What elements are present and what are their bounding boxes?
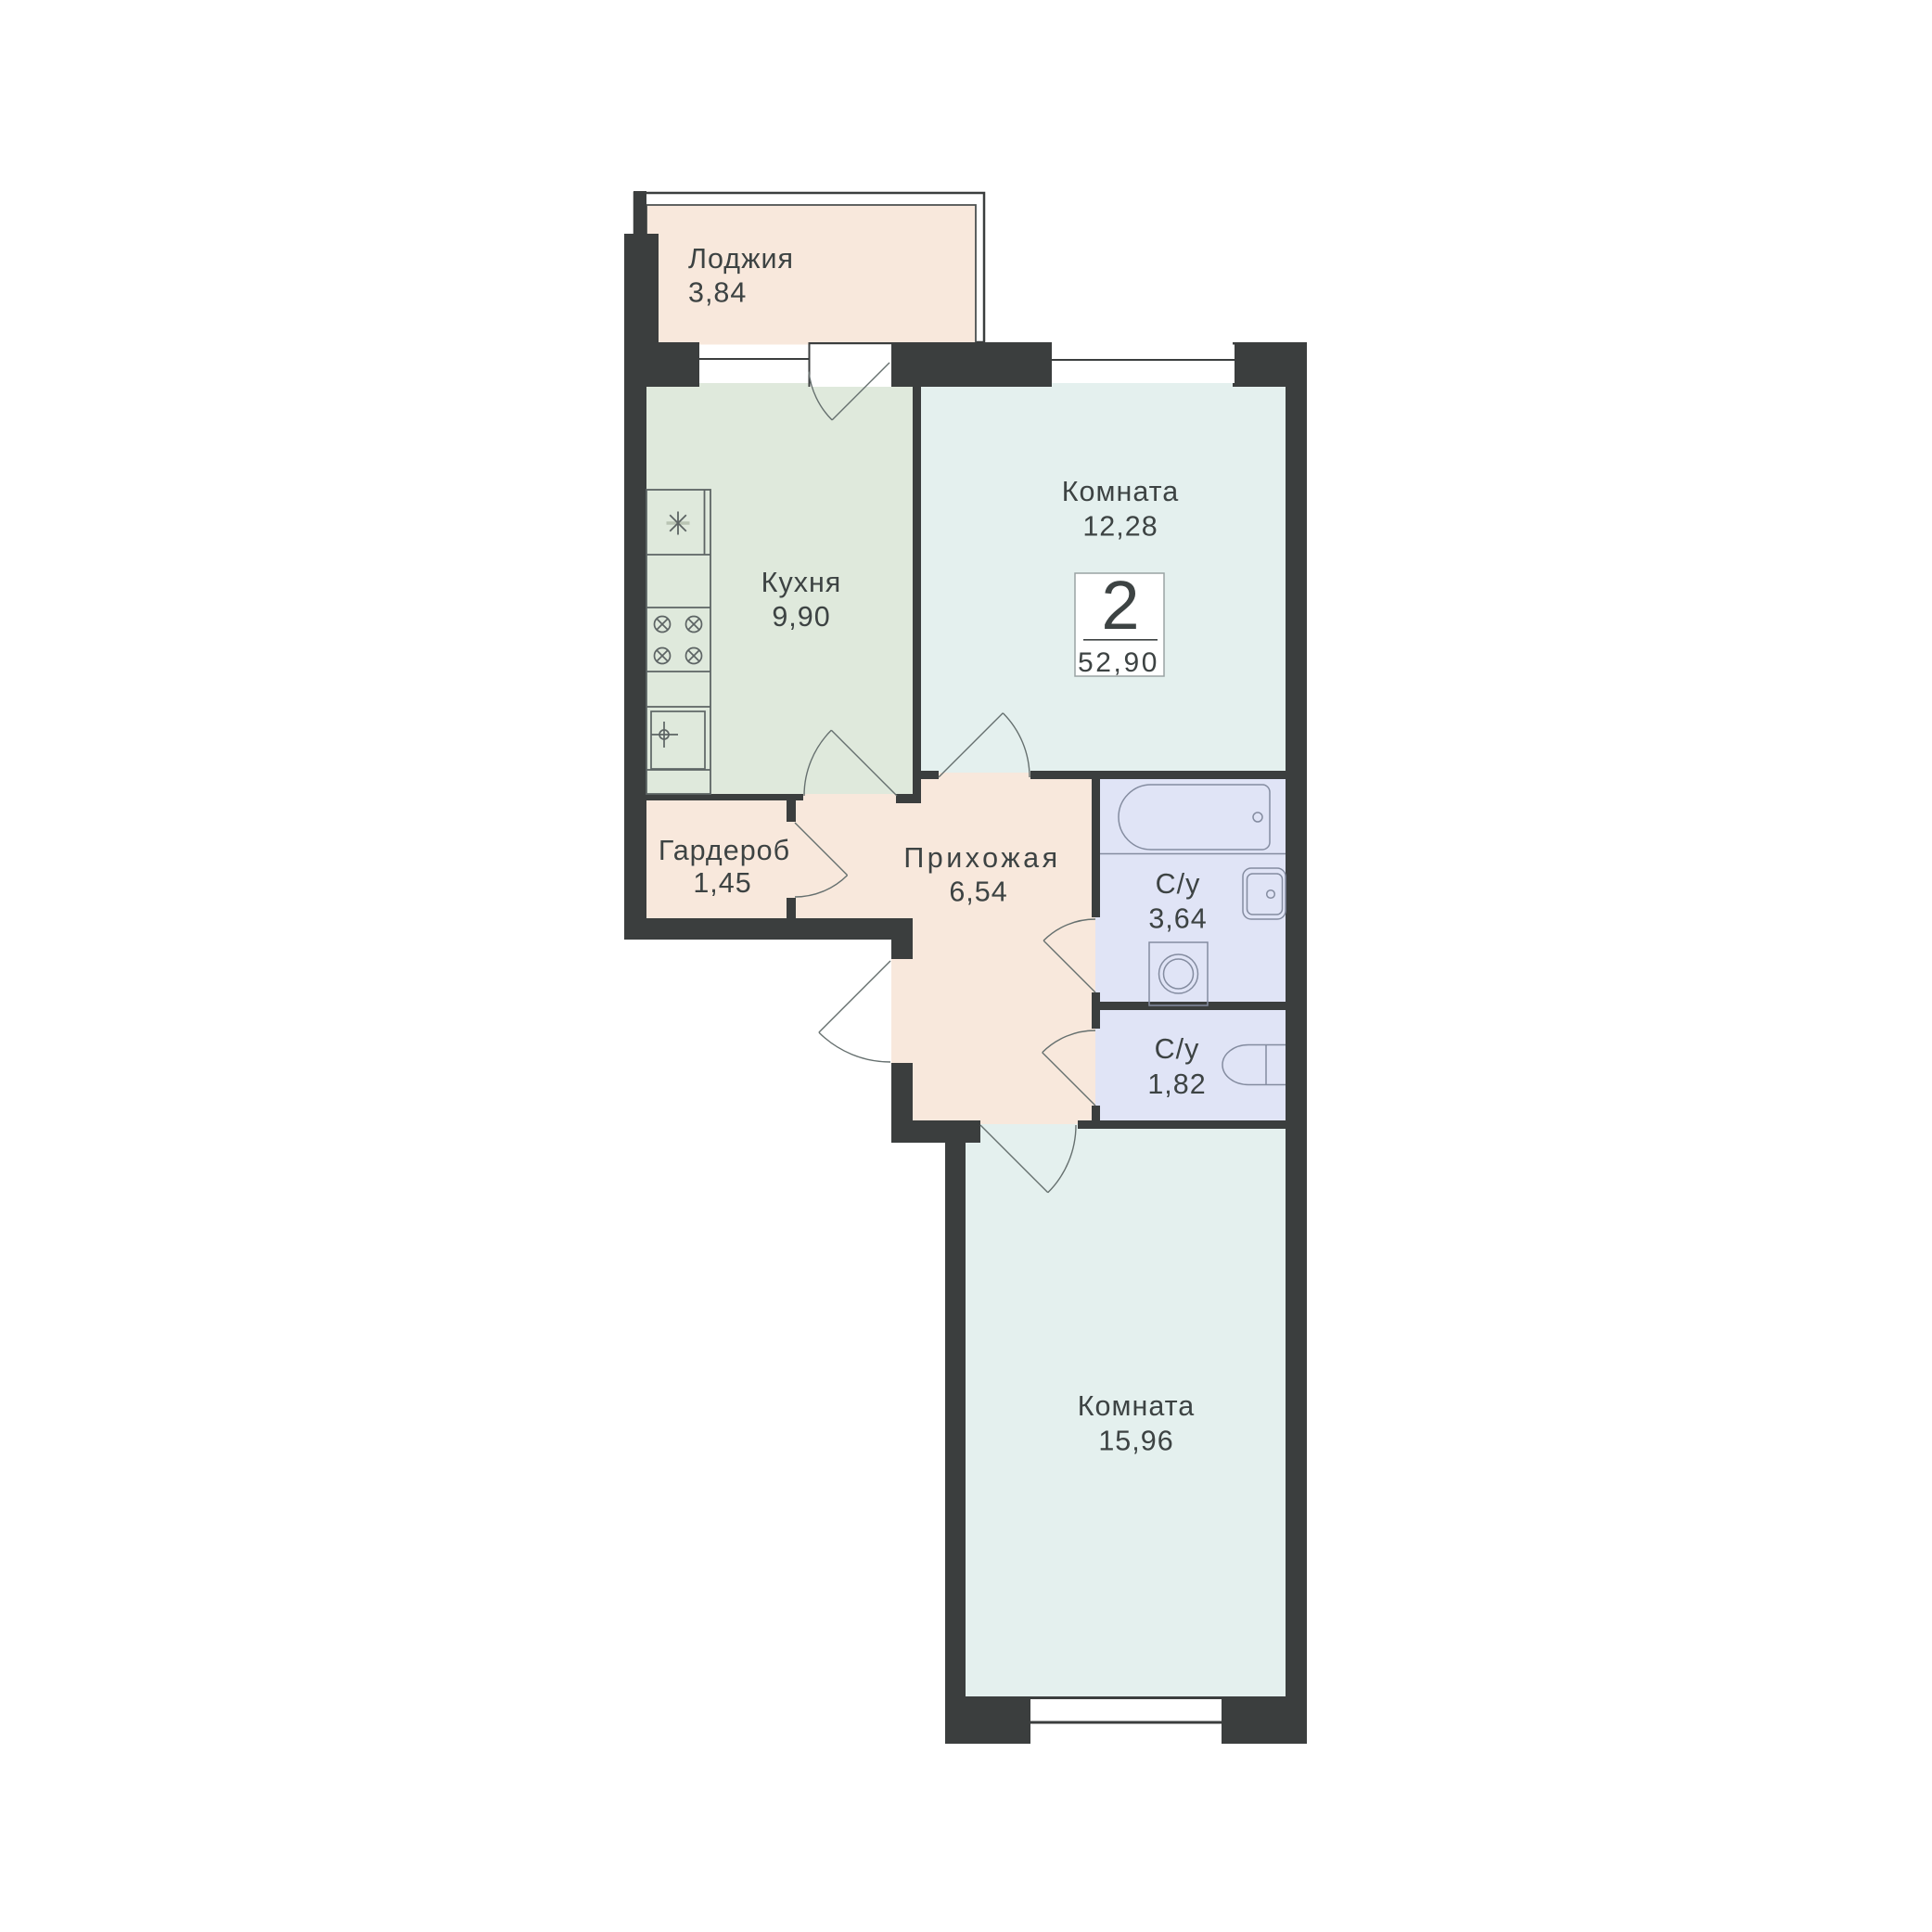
- svg-text:12,28: 12,28: [1082, 511, 1158, 543]
- svg-text:Кухня: Кухня: [761, 567, 842, 598]
- svg-text:Гардероб: Гардероб: [659, 835, 790, 866]
- svg-text:С/у: С/у: [1155, 1033, 1200, 1065]
- svg-text:Лоджия: Лоджия: [688, 243, 794, 275]
- svg-text:1,82: 1,82: [1147, 1068, 1206, 1100]
- svg-text:2: 2: [1101, 567, 1139, 644]
- svg-text:Комната: Комната: [1062, 476, 1179, 507]
- svg-text:52,90: 52,90: [1078, 647, 1159, 678]
- svg-text:Прихожая: Прихожая: [903, 842, 1060, 874]
- svg-text:6,54: 6,54: [949, 876, 1007, 908]
- svg-text:3,84: 3,84: [688, 277, 747, 309]
- svg-text:С/у: С/у: [1156, 868, 1201, 900]
- svg-text:1,45: 1,45: [693, 867, 751, 899]
- svg-text:9,90: 9,90: [772, 601, 830, 633]
- svg-text:3,64: 3,64: [1148, 903, 1207, 935]
- svg-text:15,96: 15,96: [1098, 1426, 1173, 1457]
- svg-text:Комната: Комната: [1078, 1390, 1195, 1422]
